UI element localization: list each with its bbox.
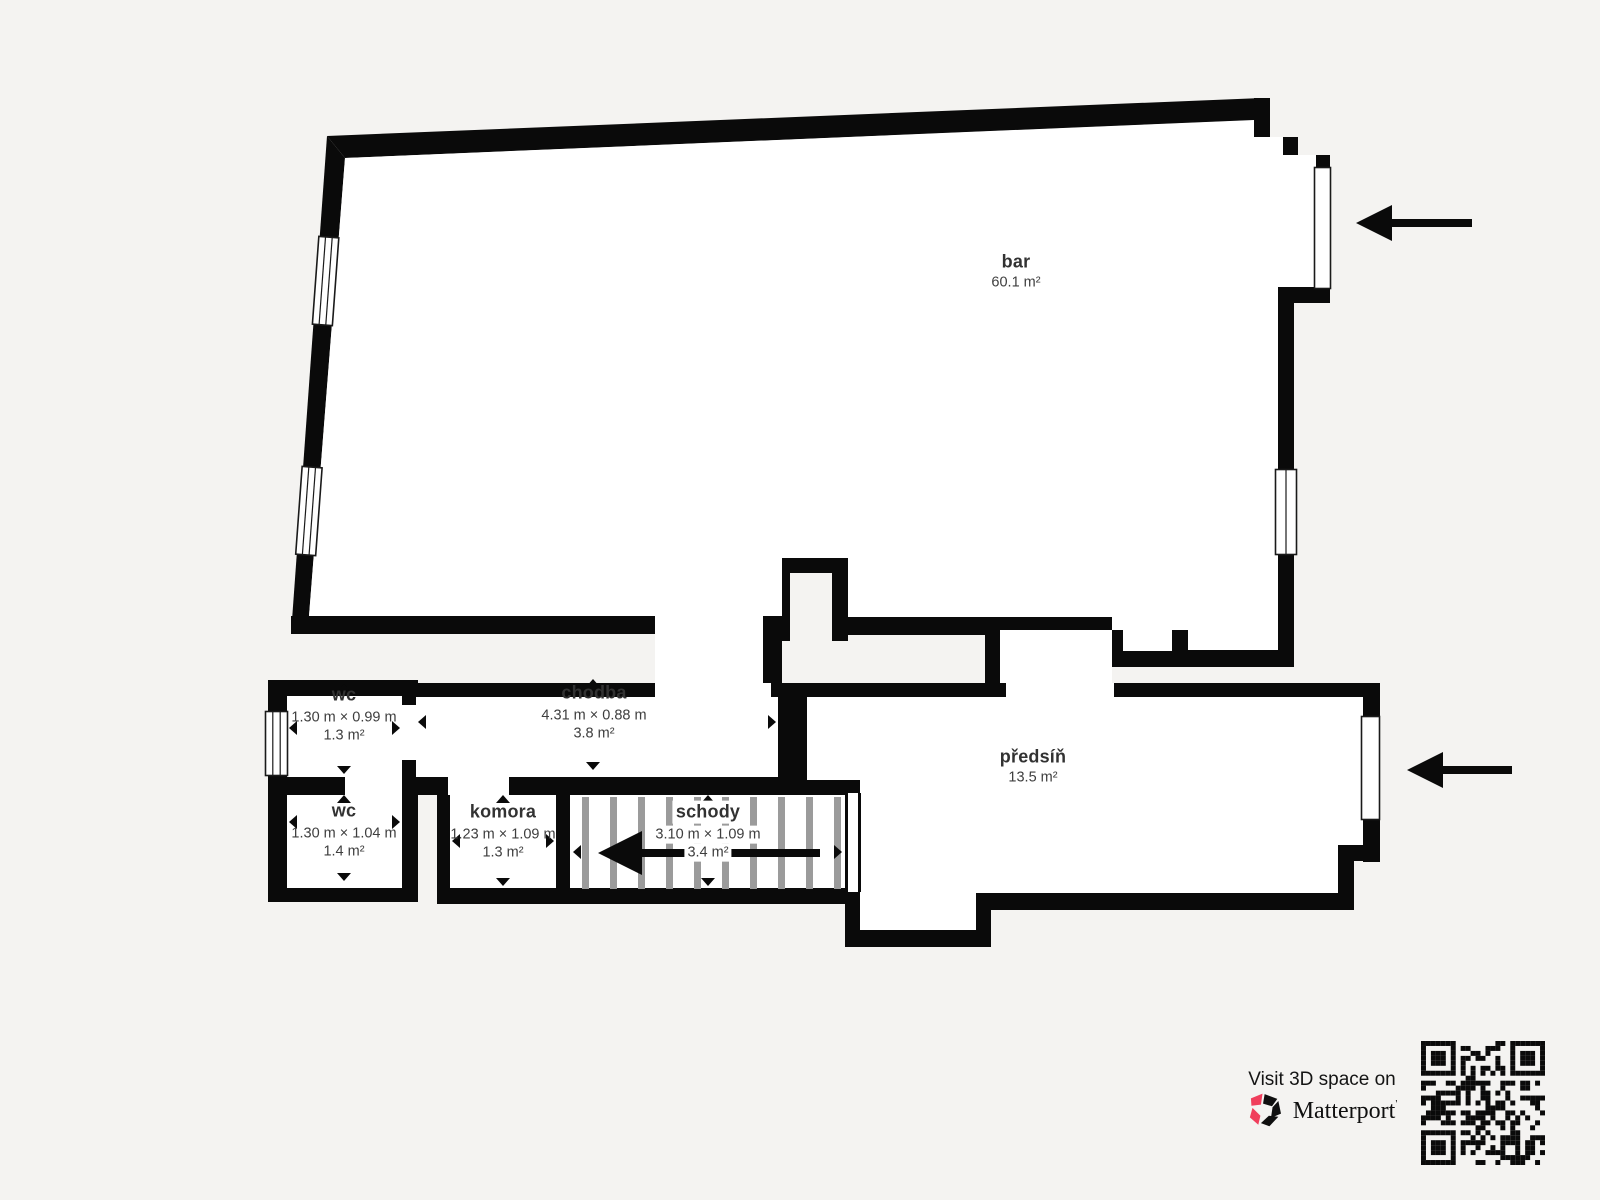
window-icon	[266, 712, 288, 776]
opening-komora	[448, 777, 509, 795]
room-wc-top	[287, 696, 402, 777]
opening-wc-bottom	[345, 777, 402, 795]
qr-code-icon	[1421, 1041, 1545, 1165]
passage	[1000, 630, 1112, 683]
door-schody-predsin	[845, 793, 861, 892]
matterport-brand: Matterport'	[1247, 1092, 1398, 1130]
opening-predsin-bar	[1006, 683, 1114, 697]
room-komora	[450, 795, 556, 888]
floorplan-page: bar 60.1 m² chodba 4.31 m × 0.88 m 3.8 m…	[0, 0, 1600, 1200]
window-icon	[1276, 470, 1297, 555]
entrance-arrow-icon	[1407, 752, 1512, 788]
floor-plan	[0, 0, 1600, 1200]
entrance-door-top	[1315, 168, 1331, 289]
entrance-door-right	[1362, 717, 1380, 820]
visit-3d-space-text: Visit 3D space on	[1248, 1069, 1396, 1091]
opening-wc-top	[400, 705, 420, 760]
room-bar	[309, 120, 1316, 697]
entrance-arrow-icon	[1356, 205, 1472, 241]
matterport-wordmark: Matterport'	[1293, 1098, 1398, 1125]
opening-chodba-bar	[657, 683, 771, 697]
matterport-logo-icon	[1247, 1092, 1285, 1130]
